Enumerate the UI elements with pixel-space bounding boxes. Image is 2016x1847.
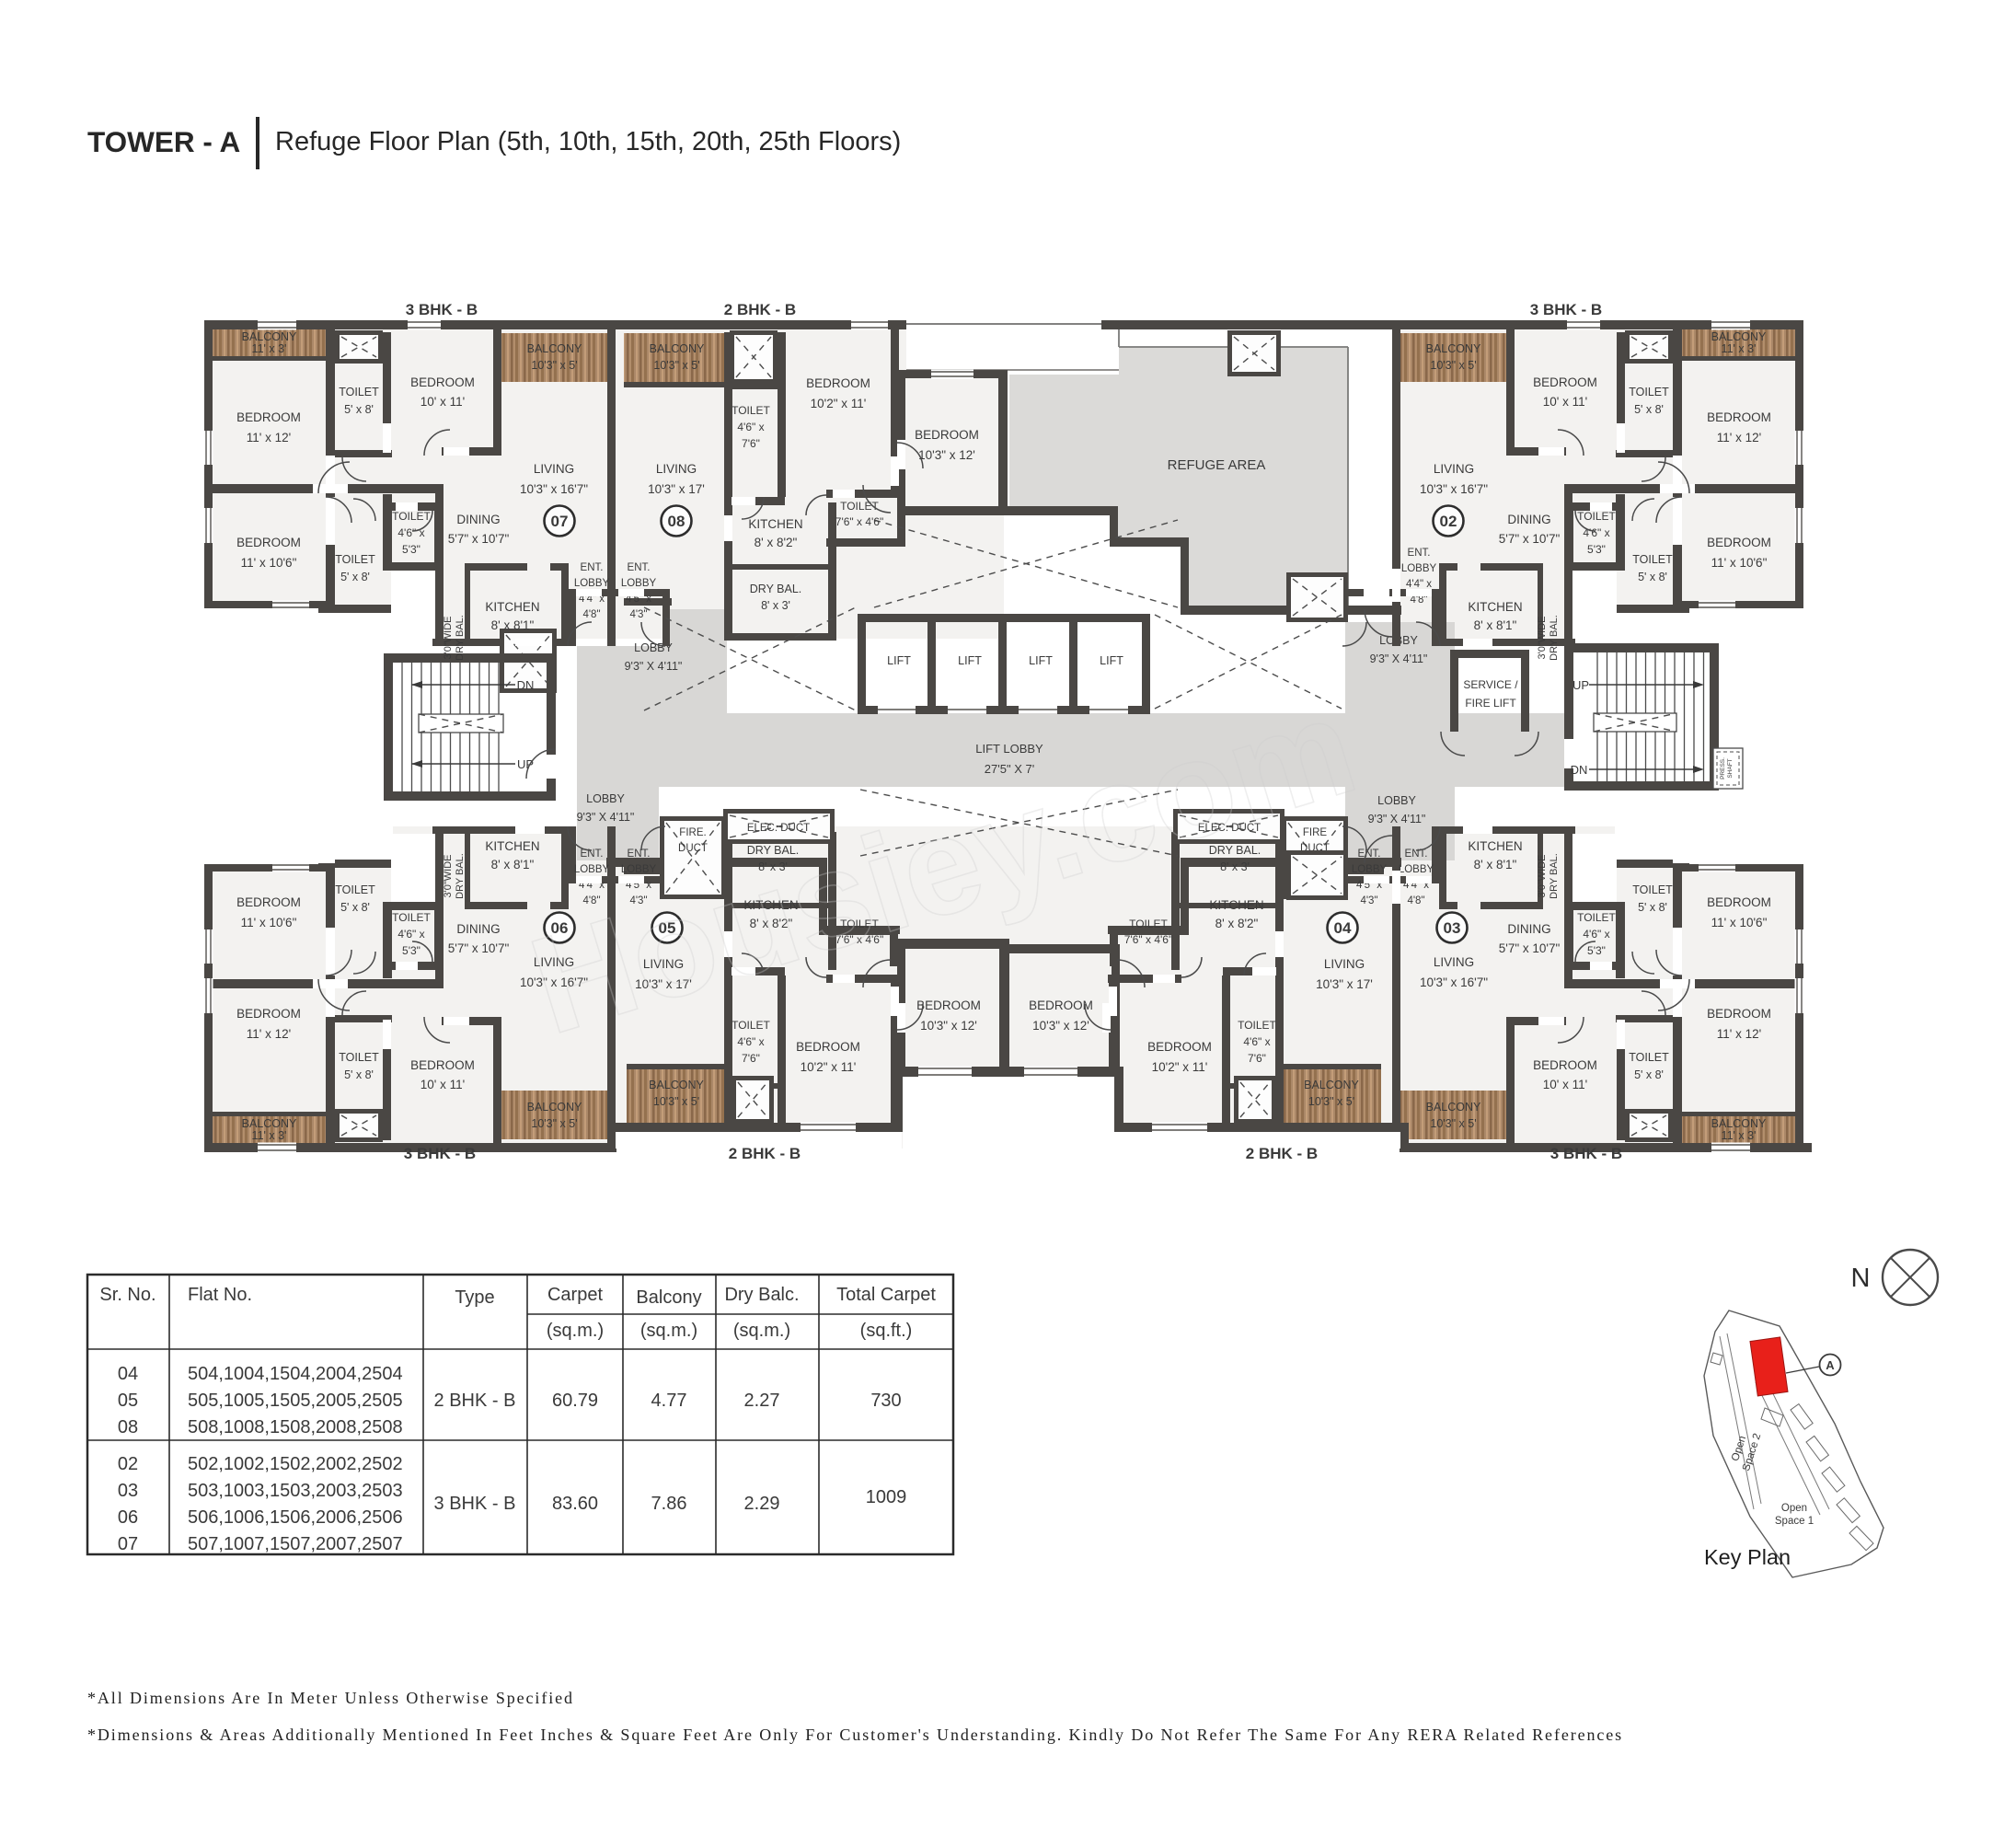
svg-text:4'6" x: 4'6" x	[1583, 526, 1609, 539]
svg-text:506,1006,1506,2006,2506: 506,1006,1506,2006,2506	[188, 1507, 403, 1528]
svg-text:TOILET: TOILET	[1632, 883, 1673, 896]
svg-text:BEDROOM: BEDROOM	[236, 410, 301, 424]
svg-text:LIFT: LIFT	[887, 654, 911, 667]
svg-text:2 BHK - B: 2 BHK - B	[729, 1145, 801, 1162]
svg-text:11' x 12': 11' x 12'	[1717, 1027, 1761, 1041]
svg-text:10'3" x 5': 10'3" x 5'	[531, 359, 577, 372]
svg-text:ENT.: ENT.	[581, 562, 604, 573]
svg-text:07: 07	[551, 513, 569, 530]
svg-text:KITCHEN: KITCHEN	[485, 839, 539, 853]
svg-text:BEDROOM: BEDROOM	[1533, 375, 1597, 389]
svg-text:TOILET: TOILET	[1629, 386, 1669, 398]
svg-text:REFUGE AREA: REFUGE AREA	[1168, 457, 1266, 473]
svg-text:TOILET: TOILET	[335, 553, 375, 566]
svg-text:4'6" x: 4'6" x	[1243, 1035, 1270, 1048]
svg-text:7'6": 7'6"	[742, 1052, 760, 1065]
svg-text:DRY BAL.: DRY BAL.	[455, 615, 466, 661]
svg-text:DN: DN	[517, 678, 535, 692]
svg-text:LOBBY: LOBBY	[1352, 864, 1388, 875]
svg-text:5'3": 5'3"	[402, 944, 420, 957]
svg-text:1009: 1009	[866, 1487, 907, 1507]
svg-text:BALCONY: BALCONY	[242, 330, 297, 343]
svg-text:DN: DN	[1571, 763, 1588, 777]
svg-text:*All Dimensions Are In Meter U: *All Dimensions Are In Meter Unless Othe…	[87, 1689, 574, 1707]
svg-text:LIFT: LIFT	[1029, 654, 1053, 667]
svg-text:02: 02	[118, 1454, 138, 1474]
svg-text:3'0"WIDE: 3'0"WIDE	[443, 617, 454, 660]
svg-text:Total Carpet: Total Carpet	[836, 1285, 936, 1305]
svg-text:11' x 10'6": 11' x 10'6"	[1711, 556, 1768, 570]
svg-text:*Dimensions & Areas Additional: *Dimensions & Areas Additionally Mention…	[87, 1726, 1623, 1744]
svg-text:LIFT: LIFT	[1100, 654, 1123, 667]
svg-text:DRY BAL.: DRY BAL.	[1549, 853, 1560, 899]
svg-text:Sr. No.: Sr. No.	[99, 1285, 156, 1305]
svg-text:4'8": 4'8"	[1407, 895, 1424, 906]
svg-text:DRY BAL.: DRY BAL.	[1549, 615, 1560, 661]
svg-text:TOILET: TOILET	[732, 1019, 770, 1032]
svg-text:5' x 8': 5' x 8'	[1638, 901, 1667, 914]
svg-text:10'3" x 5': 10'3" x 5'	[1430, 359, 1476, 372]
svg-text:ENT.: ENT.	[1358, 848, 1381, 860]
svg-text:TOILET: TOILET	[339, 386, 379, 398]
svg-text:2 BHK - B: 2 BHK - B	[724, 301, 796, 318]
svg-text:11' x 10'6": 11' x 10'6"	[241, 916, 297, 929]
svg-text:DUCT: DUCT	[678, 843, 708, 854]
svg-text:5'7" x 10'7": 5'7" x 10'7"	[1499, 941, 1561, 955]
svg-text:4'6" x: 4'6" x	[737, 1035, 764, 1048]
svg-text:5'7" x 10'7": 5'7" x 10'7"	[448, 941, 510, 955]
svg-text:LIVING: LIVING	[656, 462, 697, 476]
svg-text:8' x 3': 8' x 3'	[1220, 860, 1250, 873]
svg-text:3 BHK - B: 3 BHK - B	[434, 1494, 516, 1514]
svg-text:BEDROOM: BEDROOM	[236, 1007, 301, 1021]
svg-text:10'3" x 5': 10'3" x 5'	[653, 1095, 699, 1108]
svg-text:BEDROOM: BEDROOM	[916, 999, 981, 1012]
svg-text:07: 07	[118, 1534, 138, 1554]
svg-text:Key Plan: Key Plan	[1704, 1545, 1791, 1569]
svg-text:BEDROOM: BEDROOM	[236, 536, 301, 549]
svg-text:KITCHEN: KITCHEN	[1468, 839, 1522, 853]
svg-text:10'3" x 16'7": 10'3" x 16'7"	[1420, 482, 1488, 496]
svg-text:N: N	[1851, 1264, 1871, 1293]
svg-text:3 BHK - B: 3 BHK - B	[404, 1145, 476, 1162]
svg-text:5' x 8': 5' x 8'	[344, 403, 374, 416]
svg-text:(sq.m.): (sq.m.)	[547, 1321, 604, 1341]
svg-text:5'3": 5'3"	[1587, 944, 1606, 957]
svg-text:Balcony: Balcony	[636, 1287, 701, 1308]
svg-text:08: 08	[668, 513, 685, 530]
svg-text:LIVING: LIVING	[1324, 957, 1365, 971]
svg-text:4'3": 4'3"	[629, 609, 647, 620]
svg-text:9'3" X 4'11": 9'3" X 4'11"	[625, 660, 683, 673]
svg-text:5' x 8': 5' x 8'	[1634, 403, 1664, 416]
svg-text:10'3" x 16'7": 10'3" x 16'7"	[520, 482, 588, 496]
svg-text:5'3": 5'3"	[402, 543, 420, 556]
svg-text:4'6" x: 4'6" x	[397, 928, 424, 941]
svg-text:11' x 3': 11' x 3'	[1722, 342, 1757, 355]
svg-text:PRESS.: PRESS.	[1720, 757, 1726, 779]
svg-text:60.79: 60.79	[552, 1391, 598, 1411]
svg-text:7'6" x 4'6": 7'6" x 4'6"	[835, 515, 883, 528]
svg-text:4'8": 4'8"	[582, 609, 600, 620]
svg-text:730: 730	[870, 1391, 901, 1411]
svg-text:LIFT: LIFT	[958, 654, 982, 667]
svg-text:BALCONY: BALCONY	[527, 1101, 582, 1114]
svg-text:10'3" x 16'7": 10'3" x 16'7"	[1420, 975, 1488, 989]
svg-text:10'3" x 5': 10'3" x 5'	[531, 1117, 577, 1130]
svg-text:BEDROOM: BEDROOM	[1147, 1040, 1212, 1054]
svg-text:BEDROOM: BEDROOM	[236, 895, 301, 909]
svg-text:10'2" x 11': 10'2" x 11'	[811, 397, 867, 410]
svg-text:5' x 8': 5' x 8'	[1638, 571, 1667, 583]
svg-text:10'3" x 5': 10'3" x 5'	[653, 359, 699, 372]
svg-text:BEDROOM: BEDROOM	[1533, 1058, 1597, 1072]
svg-text:LIVING: LIVING	[1434, 955, 1474, 969]
svg-text:10'3" x 5': 10'3" x 5'	[1430, 1117, 1476, 1130]
svg-text:2 BHK - B: 2 BHK - B	[1246, 1145, 1318, 1162]
svg-text:A: A	[1826, 1358, 1835, 1372]
svg-text:11' x 3': 11' x 3'	[1722, 1129, 1757, 1142]
svg-text:8' x 3': 8' x 3'	[761, 599, 790, 612]
svg-text:8' x 8'1": 8' x 8'1"	[1474, 618, 1517, 632]
svg-text:505,1005,1505,2005,2505: 505,1005,1505,2005,2505	[188, 1391, 403, 1411]
svg-text:TOILET: TOILET	[1577, 510, 1616, 523]
svg-text:TOILET: TOILET	[1632, 553, 1673, 566]
svg-text:10'2" x 11': 10'2" x 11'	[801, 1060, 857, 1074]
svg-text:TOWER - A: TOWER - A	[87, 125, 240, 158]
svg-text:DINING: DINING	[1507, 922, 1550, 936]
svg-text:LOBBY: LOBBY	[1399, 864, 1434, 875]
svg-text:10'2" x 11': 10'2" x 11'	[1152, 1060, 1208, 1074]
svg-text:3'0"WIDE: 3'0"WIDE	[443, 855, 454, 898]
svg-text:Space 1: Space 1	[1775, 1516, 1814, 1527]
svg-text:SHAFT: SHAFT	[1727, 758, 1734, 778]
svg-text:8' x 8'1": 8' x 8'1"	[491, 618, 535, 632]
svg-text:BEDROOM: BEDROOM	[806, 376, 870, 390]
svg-text:DINING: DINING	[1507, 513, 1550, 526]
svg-text:10' x 11': 10' x 11'	[1543, 395, 1587, 409]
svg-text:ENT.: ENT.	[628, 562, 651, 573]
svg-text:4.77: 4.77	[651, 1391, 687, 1411]
svg-text:BEDROOM: BEDROOM	[410, 1058, 475, 1072]
svg-text:8' x 8'2": 8' x 8'2"	[755, 536, 798, 549]
svg-text:LOBBY: LOBBY	[621, 578, 657, 589]
svg-text:5' x 8': 5' x 8'	[340, 571, 370, 583]
svg-text:BALCONY: BALCONY	[1304, 1079, 1359, 1091]
svg-text:Refuge Floor Plan (5th, 10th,: Refuge Floor Plan (5th, 10th, 15th, 20th…	[275, 127, 901, 156]
svg-text:UP: UP	[1572, 678, 1589, 692]
svg-text:11' x 12': 11' x 12'	[1717, 431, 1761, 444]
svg-text:5'3": 5'3"	[1587, 543, 1606, 556]
svg-text:UP: UP	[517, 757, 534, 771]
svg-text:3'0"WIDE: 3'0"WIDE	[1537, 617, 1548, 660]
svg-text:BEDROOM: BEDROOM	[410, 375, 475, 389]
svg-text:9'3" X 4'11": 9'3" X 4'11"	[577, 811, 635, 824]
svg-text:KITCHEN: KITCHEN	[1209, 898, 1263, 912]
svg-text:LOBBY: LOBBY	[1377, 794, 1416, 807]
svg-text:TOILET: TOILET	[1238, 1019, 1276, 1032]
svg-text:11' x 3': 11' x 3'	[252, 342, 287, 355]
svg-text:10'3" x 17': 10'3" x 17'	[648, 482, 705, 496]
svg-text:4'4" x: 4'4" x	[1406, 579, 1432, 590]
svg-text:LOBBY: LOBBY	[574, 578, 610, 589]
svg-text:7'6": 7'6"	[1248, 1052, 1266, 1065]
svg-text:TOILET: TOILET	[1577, 911, 1616, 924]
svg-text:DRY BAL.: DRY BAL.	[455, 853, 466, 899]
svg-text:3 BHK - B: 3 BHK - B	[1550, 1145, 1622, 1162]
svg-text:ENT.: ENT.	[1408, 548, 1431, 559]
svg-text:BEDROOM: BEDROOM	[1707, 895, 1771, 909]
svg-text:(sq.m.): (sq.m.)	[640, 1321, 697, 1341]
svg-text:11' x 12': 11' x 12'	[247, 431, 291, 444]
svg-text:4'3": 4'3"	[1360, 895, 1377, 906]
svg-text:BEDROOM: BEDROOM	[1707, 536, 1771, 549]
svg-text:BEDROOM: BEDROOM	[796, 1040, 860, 1054]
svg-text:BALCONY: BALCONY	[1426, 1101, 1481, 1114]
svg-text:4'6" x: 4'6" x	[397, 526, 424, 539]
svg-text:BALCONY: BALCONY	[1426, 342, 1481, 355]
svg-text:11' x 10'6": 11' x 10'6"	[241, 556, 297, 570]
svg-text:BEDROOM: BEDROOM	[1707, 1007, 1771, 1021]
svg-text:FIRE LIFT: FIRE LIFT	[1465, 697, 1516, 710]
svg-text:BALCONY: BALCONY	[527, 342, 582, 355]
svg-text:BEDROOM: BEDROOM	[1707, 410, 1771, 424]
svg-text:2 BHK - B: 2 BHK - B	[434, 1391, 516, 1411]
svg-text:03: 03	[118, 1481, 138, 1501]
svg-text:83.60: 83.60	[552, 1494, 598, 1514]
svg-text:TOILET: TOILET	[339, 1051, 379, 1064]
svg-text:9'3" X 4'11": 9'3" X 4'11"	[1370, 652, 1428, 665]
svg-text:LIFT LOBBY: LIFT LOBBY	[975, 742, 1043, 756]
svg-text:TOILET: TOILET	[392, 510, 431, 523]
svg-text:5'7" x 10'7": 5'7" x 10'7"	[1499, 532, 1561, 546]
svg-text:02: 02	[1440, 513, 1457, 530]
svg-text:BALCONY: BALCONY	[242, 1117, 297, 1130]
svg-text:LOBBY: LOBBY	[586, 792, 625, 805]
svg-text:11' x 3': 11' x 3'	[252, 1129, 287, 1142]
svg-text:BALCONY: BALCONY	[649, 1079, 704, 1091]
svg-text:05: 05	[118, 1391, 138, 1411]
svg-text:06: 06	[118, 1507, 138, 1528]
svg-text:03: 03	[1444, 919, 1461, 937]
svg-text:BEDROOM: BEDROOM	[1029, 999, 1093, 1012]
svg-text:7.86: 7.86	[651, 1494, 687, 1514]
svg-text:04: 04	[1334, 919, 1352, 937]
svg-text:4'6" x: 4'6" x	[1583, 928, 1609, 941]
svg-text:10'3" x 12': 10'3" x 12'	[1032, 1019, 1089, 1033]
svg-text:7'6" x 4'6": 7'6" x 4'6"	[1124, 933, 1172, 946]
svg-text:508,1008,1508,2008,2508: 508,1008,1508,2008,2508	[188, 1417, 403, 1437]
svg-text:5' x 8': 5' x 8'	[1634, 1068, 1664, 1081]
svg-text:LIVING: LIVING	[1434, 462, 1474, 476]
svg-text:DINING: DINING	[456, 513, 500, 526]
svg-text:Type: Type	[455, 1287, 494, 1308]
svg-text:TOILET: TOILET	[1629, 1051, 1669, 1064]
svg-text:DINING: DINING	[456, 922, 500, 936]
svg-text:BALCONY: BALCONY	[1711, 330, 1767, 343]
svg-text:2.29: 2.29	[744, 1494, 780, 1514]
svg-text:SERVICE /: SERVICE /	[1463, 678, 1518, 691]
svg-text:BALCONY: BALCONY	[650, 342, 705, 355]
svg-text:2.27: 2.27	[744, 1391, 780, 1411]
svg-text:9'3" X 4'11": 9'3" X 4'11"	[1368, 813, 1426, 825]
svg-text:503,1003,1503,2003,2503: 503,1003,1503,2003,2503	[188, 1481, 403, 1501]
svg-text:BEDROOM: BEDROOM	[915, 428, 979, 442]
svg-text:504,1004,1504,2004,2504: 504,1004,1504,2004,2504	[188, 1364, 403, 1384]
svg-text:5' x 8': 5' x 8'	[340, 901, 370, 914]
svg-text:BALCONY: BALCONY	[1711, 1117, 1767, 1130]
svg-text:5' x 8': 5' x 8'	[344, 1068, 374, 1081]
svg-text:10' x 11': 10' x 11'	[420, 395, 465, 409]
svg-text:7'6": 7'6"	[742, 437, 760, 450]
svg-text:KITCHEN: KITCHEN	[485, 600, 539, 614]
svg-text:08: 08	[118, 1417, 138, 1437]
svg-text:TOILET: TOILET	[732, 404, 770, 417]
svg-text:TOILET: TOILET	[1129, 918, 1168, 930]
svg-text:10' x 11': 10' x 11'	[420, 1078, 465, 1091]
svg-text:11' x 10'6": 11' x 10'6"	[1711, 916, 1768, 929]
svg-text:ENT.: ENT.	[628, 848, 651, 860]
svg-text:Carpet: Carpet	[547, 1285, 603, 1305]
svg-text:8' x 8'2": 8' x 8'2"	[1215, 917, 1259, 930]
svg-text:Dry Balc.: Dry Balc.	[724, 1285, 799, 1305]
svg-text:10'3" x 12': 10'3" x 12'	[920, 1019, 977, 1033]
svg-text:8' x 8'1": 8' x 8'1"	[1474, 858, 1517, 872]
svg-text:LIVING: LIVING	[534, 462, 574, 476]
svg-text:10' x 11': 10' x 11'	[1543, 1078, 1587, 1091]
svg-text:Flat No.: Flat No.	[188, 1285, 252, 1305]
svg-text:Open: Open	[1781, 1503, 1807, 1514]
svg-text:5'7" x 10'7": 5'7" x 10'7"	[448, 532, 510, 546]
svg-text:507,1007,1507,2007,2507: 507,1007,1507,2007,2507	[188, 1534, 403, 1554]
svg-text:10'3" x 5': 10'3" x 5'	[1308, 1095, 1354, 1108]
svg-text:8' x 8'1": 8' x 8'1"	[491, 858, 535, 872]
svg-text:502,1002,1502,2002,2502: 502,1002,1502,2002,2502	[188, 1454, 403, 1474]
svg-text:3'0"WIDE: 3'0"WIDE	[1537, 855, 1548, 898]
svg-text:(sq.ft.): (sq.ft.)	[860, 1321, 913, 1341]
svg-text:11' x 12': 11' x 12'	[247, 1027, 291, 1041]
svg-text:10'3" x 12': 10'3" x 12'	[918, 448, 975, 462]
svg-text:10'3" x 17': 10'3" x 17'	[1316, 977, 1373, 991]
svg-text:KITCHEN: KITCHEN	[1468, 600, 1522, 614]
svg-text:DRY BAL.: DRY BAL.	[750, 583, 802, 595]
svg-text:(sq.m.): (sq.m.)	[733, 1321, 790, 1341]
svg-text:TOILET: TOILET	[392, 911, 431, 924]
svg-text:KITCHEN: KITCHEN	[748, 517, 802, 531]
svg-text:LOBBY: LOBBY	[574, 864, 610, 875]
svg-text:3 BHK - B: 3 BHK - B	[1530, 301, 1602, 318]
svg-text:4'6" x: 4'6" x	[737, 421, 764, 433]
svg-text:FIRE.: FIRE.	[679, 827, 706, 838]
svg-text:LOBBY: LOBBY	[1401, 563, 1437, 574]
svg-text:04: 04	[118, 1364, 138, 1384]
svg-text:3 BHK - B: 3 BHK - B	[406, 301, 478, 318]
svg-text:TOILET: TOILET	[335, 883, 375, 896]
